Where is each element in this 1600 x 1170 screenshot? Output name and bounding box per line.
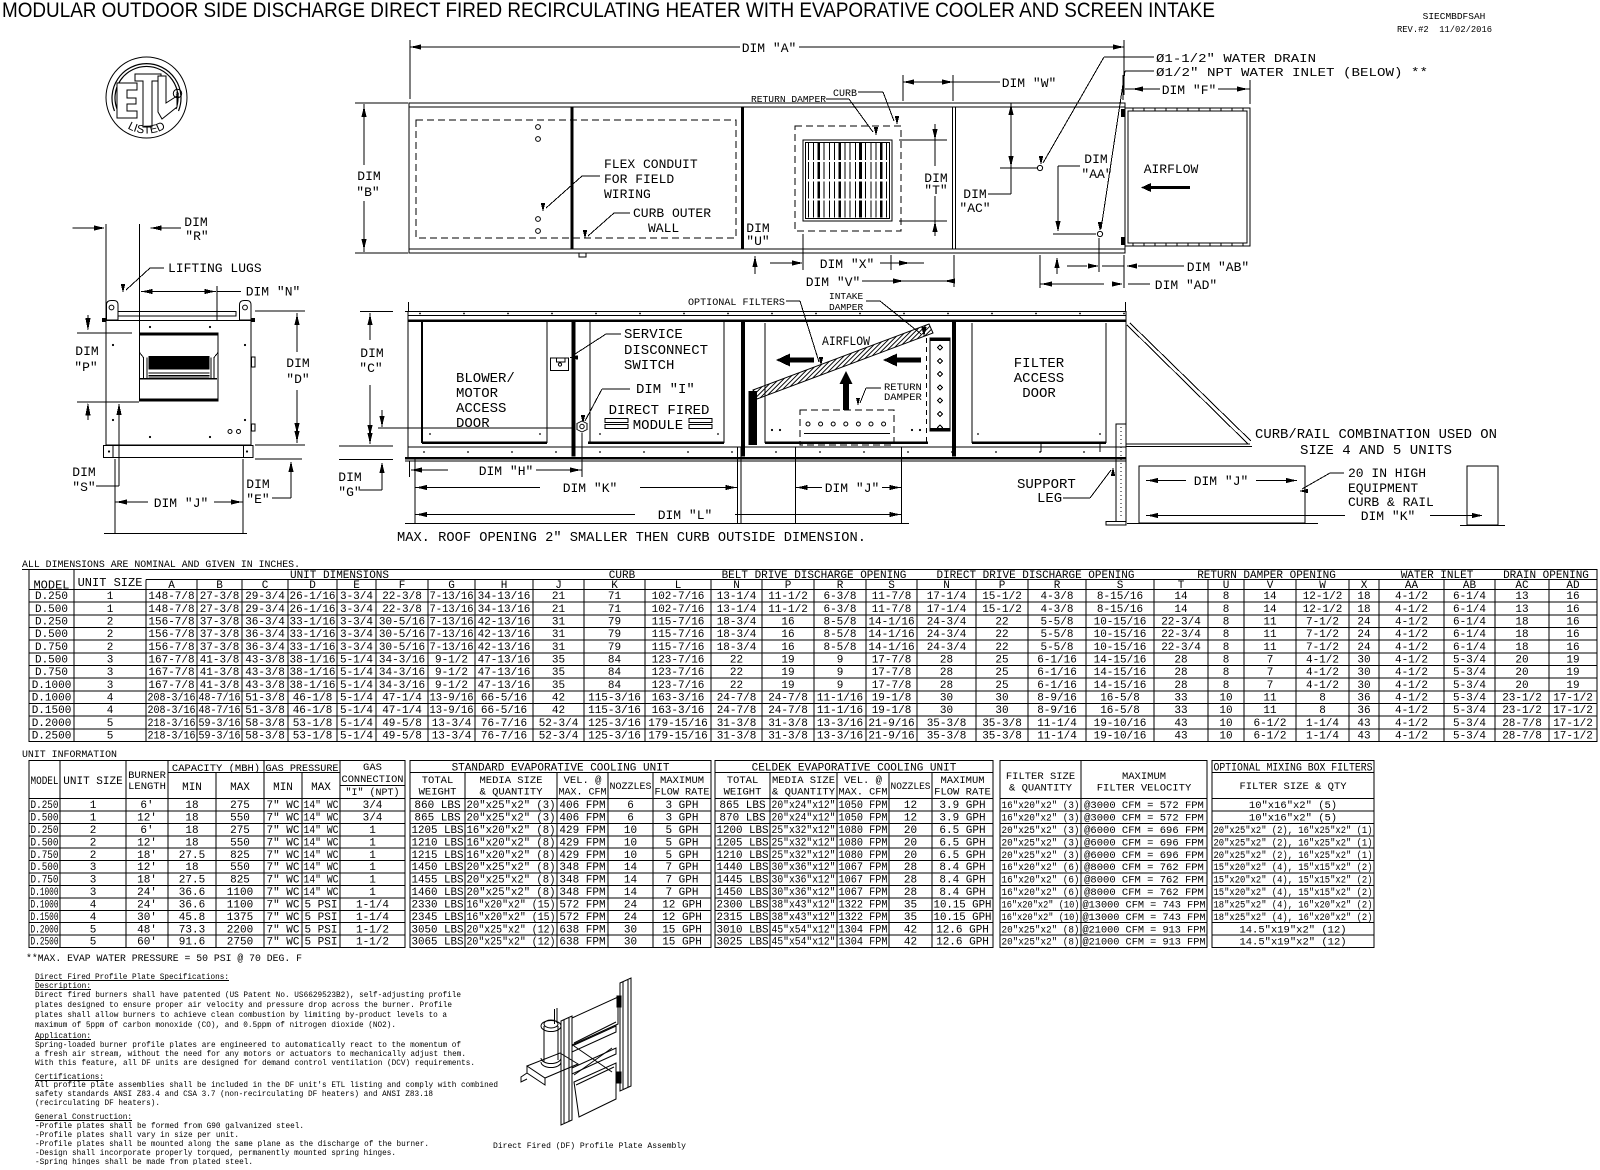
svg-text:860 LBS: 860 LBS: [414, 800, 461, 812]
svg-text:CURB/RAIL COMBINATION USED ON: CURB/RAIL COMBINATION USED ON: [1255, 427, 1497, 443]
svg-text:10″x16″x2″ (5): 10″x16″x2″ (5): [1249, 800, 1337, 812]
svg-text:20″x25″x2″ (2), 16″x25″x2″ (1): 20″x25″x2″ (2), 16″x25″x2″ (1): [1214, 837, 1373, 849]
svg-text:19: 19: [781, 654, 794, 666]
svg-text:DIRECT FIRED: DIRECT FIRED: [609, 403, 710, 419]
svg-text:19-1/8: 19-1/8: [872, 705, 912, 717]
svg-text:UNIT SIZE: UNIT SIZE: [78, 576, 143, 590]
svg-text:47-13/16: 47-13/16: [478, 680, 531, 692]
svg-text:18: 18: [185, 862, 198, 874]
svg-text:38-1/16: 38-1/16: [290, 680, 336, 692]
svg-text:8: 8: [1223, 642, 1230, 654]
svg-text:15″x20″x2″ (4), 15″x15″x2″ (2): 15″x20″x2″ (4), 15″x15″x2″ (2): [1214, 875, 1373, 887]
svg-text:ACCESS: ACCESS: [456, 401, 506, 417]
svg-text:3025 LBS: 3025 LBS: [717, 937, 769, 949]
svg-text:12: 12: [904, 813, 917, 825]
svg-text:156-7/8: 156-7/8: [148, 629, 194, 641]
svg-text:28: 28: [940, 667, 953, 679]
svg-text:35: 35: [552, 654, 565, 666]
svg-text:167-7/8: 167-7/8: [148, 680, 194, 692]
svg-text:348 FPM: 348 FPM: [559, 887, 605, 899]
svg-text:DIM: DIM: [1084, 152, 1107, 167]
svg-text:″B″: ″B″: [356, 185, 379, 200]
svg-text:1100: 1100: [227, 887, 253, 899]
svg-text:125-3/16: 125-3/16: [588, 730, 641, 742]
svg-text:825: 825: [230, 850, 250, 862]
svg-text:7 GPH: 7 GPH: [665, 887, 698, 899]
svg-text:5 GPH: 5 GPH: [665, 837, 698, 849]
svg-text:20: 20: [904, 850, 917, 862]
svg-text:28: 28: [1174, 680, 1187, 692]
svg-text:2: 2: [90, 837, 97, 849]
svg-text:16″x20″x2″ (3): 16″x20″x2″ (3): [1002, 800, 1080, 812]
svg-text:14″ WC: 14″ WC: [304, 875, 339, 887]
svg-text:4-1/2: 4-1/2: [1395, 654, 1428, 666]
svg-text:148-7/8: 148-7/8: [148, 591, 194, 603]
svg-text:4-1/2: 4-1/2: [1395, 604, 1428, 616]
svg-text:49-5/8: 49-5/8: [382, 730, 422, 742]
svg-text:3 GPH: 3 GPH: [665, 800, 698, 812]
svg-text:″C″: ″C″: [359, 361, 382, 376]
svg-text:123-7/16: 123-7/16: [652, 654, 705, 666]
svg-text:429 FPM: 429 FPM: [559, 837, 605, 849]
svg-text:20″x25″x2″ (12): 20″x25″x2″ (12): [467, 924, 556, 936]
svg-text:16: 16: [1566, 629, 1579, 641]
svg-text:18″x25″x2″ (4), 16″x20″x2″ (2): 18″x25″x2″ (4), 16″x20″x2″ (2): [1214, 912, 1373, 924]
svg-text:13-1/4: 13-1/4: [717, 591, 757, 603]
svg-text:MAXIMUM: MAXIMUM: [1122, 771, 1166, 783]
svg-text:DIM ″J″: DIM ″J″: [1194, 474, 1249, 489]
svg-text:REV.#2 11/02/2016: REV.#2 11/02/2016: [1397, 24, 1492, 35]
svg-text:42: 42: [552, 705, 565, 717]
svg-text:22-3/8: 22-3/8: [382, 604, 422, 616]
svg-text:22: 22: [730, 680, 743, 692]
svg-text:18: 18: [1515, 629, 1528, 641]
svg-text:NOZZLES: NOZZLES: [610, 781, 652, 793]
svg-text:19: 19: [1566, 680, 1579, 692]
svg-text:38-1/16: 38-1/16: [290, 667, 336, 679]
svg-text:8: 8: [1223, 667, 1230, 679]
svg-text:MAXIMUM: MAXIMUM: [660, 775, 704, 787]
svg-text:12': 12': [137, 862, 157, 874]
svg-text:15 GPH: 15 GPH: [662, 937, 702, 949]
svg-text:10: 10: [1219, 718, 1232, 730]
svg-text:7: 7: [1267, 654, 1274, 666]
svg-text:19: 19: [1566, 667, 1579, 679]
svg-text:SWITCH: SWITCH: [624, 358, 674, 374]
svg-text:31-3/8: 31-3/8: [768, 730, 808, 742]
svg-text:″U″: ″U″: [746, 234, 769, 249]
svg-text:53-1/8: 53-1/8: [293, 718, 333, 730]
svg-text:58-3/8: 58-3/8: [245, 730, 285, 742]
svg-text:24: 24: [1357, 629, 1371, 641]
svg-text:RETURN DAMPER: RETURN DAMPER: [751, 94, 826, 105]
svg-text:1-1/2: 1-1/2: [356, 924, 389, 936]
svg-text:7: 7: [1267, 667, 1274, 679]
svg-text:4-1/2: 4-1/2: [1395, 692, 1428, 704]
svg-text:Direct fired burners shall hav: Direct fired burners shall have patented…: [35, 991, 461, 1000]
svg-text:ACCESS: ACCESS: [1014, 371, 1064, 387]
svg-text:71: 71: [608, 604, 622, 616]
svg-text:18: 18: [1357, 591, 1370, 603]
svg-text:28-7/8: 28-7/8: [1502, 718, 1542, 730]
svg-text:34-13/16: 34-13/16: [478, 604, 531, 616]
svg-text:**MAX. EVAP WATER PRESSURE = 5: **MAX. EVAP WATER PRESSURE = 50 PSI @ 70…: [26, 953, 302, 965]
svg-text:10-15/16: 10-15/16: [1094, 629, 1147, 641]
svg-text:16″x20″x2″ (10): 16″x20″x2″ (10): [1002, 899, 1080, 911]
svg-text:13-3/4: 13-3/4: [432, 718, 472, 730]
svg-text:DIM ″A″: DIM ″A″: [742, 41, 797, 56]
svg-text:7″ WC: 7″ WC: [266, 887, 299, 899]
svg-text:22-3/4: 22-3/4: [1161, 616, 1201, 628]
svg-text:1375: 1375: [227, 912, 253, 924]
svg-text:20″x25″x2″ (3): 20″x25″x2″ (3): [1002, 837, 1080, 849]
svg-text:1: 1: [369, 862, 376, 874]
svg-text:163-3/16: 163-3/16: [652, 692, 705, 704]
svg-text:11-1/4: 11-1/4: [1037, 718, 1077, 730]
svg-text:18': 18': [137, 875, 157, 887]
svg-text:BELT DRIVE DISCHARGE OPENING: BELT DRIVE DISCHARGE OPENING: [722, 570, 907, 582]
svg-text:18-3/4: 18-3/4: [717, 629, 757, 641]
svg-text:17-7/8: 17-7/8: [872, 667, 912, 679]
svg-text:WEIGHT: WEIGHT: [419, 787, 457, 799]
svg-text:31: 31: [552, 616, 566, 628]
svg-text:3-3/4: 3-3/4: [340, 591, 373, 603]
svg-text:& QUANTITY: & QUANTITY: [479, 787, 543, 799]
svg-text:2345 LBS: 2345 LBS: [412, 912, 464, 924]
svg-text:13: 13: [1515, 591, 1528, 603]
svg-text:UNIT SIZE: UNIT SIZE: [63, 776, 123, 788]
svg-text:30″x36″x12″: 30″x36″x12″: [772, 862, 836, 874]
svg-text:2: 2: [90, 850, 97, 862]
svg-text:14″ WC: 14″ WC: [304, 862, 339, 874]
svg-text:15-1/2: 15-1/2: [982, 591, 1022, 603]
svg-text:″D″: ″D″: [286, 372, 309, 387]
svg-text:58-3/8: 58-3/8: [245, 718, 285, 730]
svg-text:1: 1: [369, 875, 376, 887]
svg-text:156-7/8: 156-7/8: [148, 616, 194, 628]
svg-text:plates designed to ensure prop: plates designed to ensure proper air vel…: [35, 1001, 452, 1010]
svg-text:34-3/16: 34-3/16: [379, 680, 425, 692]
svg-text:2315 LBS: 2315 LBS: [717, 912, 769, 924]
svg-text:30: 30: [995, 705, 1008, 717]
svg-text:41-3/8: 41-3/8: [200, 680, 240, 692]
svg-text:DIM ″J″: DIM ″J″: [154, 496, 209, 511]
svg-text:14-15/16: 14-15/16: [1094, 654, 1147, 666]
svg-text:43-3/8: 43-3/8: [245, 654, 285, 666]
svg-text:1: 1: [369, 825, 376, 837]
svg-text:& QUANTITY: & QUANTITY: [1009, 783, 1073, 795]
svg-text:123-7/16: 123-7/16: [652, 667, 705, 679]
svg-text:2300 LBS: 2300 LBS: [717, 899, 769, 911]
svg-text:48-7/16: 48-7/16: [199, 705, 241, 717]
svg-text:47-1/4: 47-1/4: [382, 705, 422, 717]
svg-text:29-3/4: 29-3/4: [245, 604, 285, 616]
svg-text:14: 14: [624, 862, 638, 874]
svg-text:23-1/2: 23-1/2: [1502, 705, 1542, 717]
svg-text:1: 1: [369, 850, 376, 862]
svg-text:20″x25″x2″ (8): 20″x25″x2″ (8): [1002, 937, 1080, 949]
svg-text:8-5/8: 8-5/8: [823, 616, 856, 628]
svg-text:25″x32″x12″: 25″x32″x12″: [772, 825, 836, 837]
svg-text:-Profile plates shall be mount: -Profile plates shall be mounted along t…: [35, 1140, 429, 1149]
svg-text:45″x54″x12″: 45″x54″x12″: [772, 937, 836, 949]
svg-text:11: 11: [1263, 642, 1277, 654]
svg-text:1050 FPM: 1050 FPM: [839, 813, 888, 825]
svg-text:7-1/2: 7-1/2: [1306, 616, 1339, 628]
svg-text:59-3/16: 59-3/16: [199, 730, 241, 742]
svg-text:4-3/8: 4-3/8: [1040, 591, 1073, 603]
svg-text:18: 18: [1515, 642, 1528, 654]
svg-text:WALL: WALL: [648, 221, 679, 236]
svg-text:275: 275: [230, 800, 250, 812]
svg-text:@21000 CFM = 913 FPM: @21000 CFM = 913 FPM: [1083, 937, 1206, 949]
svg-text:35-3/8: 35-3/8: [982, 718, 1022, 730]
svg-text:GAS: GAS: [363, 762, 382, 774]
svg-text:18: 18: [185, 813, 198, 825]
svg-text:MODEL: MODEL: [31, 776, 59, 788]
svg-text:DIM: DIM: [357, 169, 380, 184]
svg-text:5 GPH: 5 GPH: [665, 825, 698, 837]
svg-text:FILTER VELOCITY: FILTER VELOCITY: [1097, 783, 1192, 795]
svg-text:DIM: DIM: [338, 470, 361, 485]
svg-text:275: 275: [230, 825, 250, 837]
svg-text:30: 30: [995, 692, 1008, 704]
svg-text:2200: 2200: [227, 924, 253, 936]
svg-text:4-1/2: 4-1/2: [1306, 654, 1339, 666]
svg-text:FLOW RATE: FLOW RATE: [934, 787, 991, 799]
svg-text:16″x20″x2″ (6): 16″x20″x2″ (6): [1002, 875, 1080, 887]
svg-text:a fresh air stream, without th: a fresh air stream, without the need for…: [35, 1050, 466, 1059]
svg-text:MOTOR: MOTOR: [456, 386, 499, 402]
svg-text:10.15 GPH: 10.15 GPH: [934, 899, 992, 911]
svg-text:7″ WC: 7″ WC: [266, 825, 299, 837]
svg-text:30: 30: [1357, 654, 1370, 666]
svg-text:20″x25″x2″ (8): 20″x25″x2″ (8): [467, 862, 556, 874]
svg-text:D.2000: D.2000: [32, 718, 72, 730]
svg-text:D.1000: D.1000: [32, 692, 72, 704]
svg-text:1205 LBS: 1205 LBS: [717, 837, 769, 849]
svg-text:15″x20″x2″ (4), 15″x15″x2″ (2): 15″x20″x2″ (4), 15″x15″x2″ (2): [1214, 887, 1373, 899]
svg-text:13-3/16: 13-3/16: [817, 730, 863, 742]
svg-text:With this feature, all DF unit: With this feature, all DF units are desi…: [35, 1059, 475, 1068]
svg-text:33-1/16: 33-1/16: [290, 642, 336, 654]
svg-text:11-1/4: 11-1/4: [1037, 730, 1077, 742]
svg-text:17-1/2: 17-1/2: [1553, 718, 1593, 730]
svg-text:208-3/16: 208-3/16: [148, 692, 196, 704]
svg-text:429 FPM: 429 FPM: [559, 825, 605, 837]
svg-text:LIFTING LUGS: LIFTING LUGS: [168, 261, 262, 276]
svg-text:42: 42: [904, 937, 917, 949]
svg-text:7″ WC: 7″ WC: [266, 800, 299, 812]
svg-text:18: 18: [185, 800, 198, 812]
svg-text:6-1/2: 6-1/2: [1253, 718, 1286, 730]
svg-text:D.750: D.750: [31, 850, 59, 862]
svg-text:maximum of 5ppm of carbon mono: maximum of 5ppm of carbon monoxide (CO),…: [35, 1021, 396, 1030]
svg-text:14-1/16: 14-1/16: [868, 616, 914, 628]
svg-text:FOR FIELD: FOR FIELD: [604, 172, 674, 187]
svg-text:28: 28: [940, 654, 953, 666]
svg-text:3-3/4: 3-3/4: [340, 616, 373, 628]
svg-text:20″x24″x12″: 20″x24″x12″: [772, 800, 836, 812]
svg-text:28: 28: [940, 680, 953, 692]
svg-text:7-13/16: 7-13/16: [430, 642, 474, 654]
svg-text:7″ WC: 7″ WC: [266, 899, 299, 911]
svg-text:45″x54″x12″: 45″x54″x12″: [772, 924, 836, 936]
svg-text:FILTER: FILTER: [1014, 356, 1065, 372]
svg-text:10-15/16: 10-15/16: [1094, 616, 1147, 628]
svg-text:46-1/8: 46-1/8: [293, 692, 333, 704]
svg-text:79: 79: [608, 629, 621, 641]
svg-text:30: 30: [624, 924, 637, 936]
svg-text:2330 LBS: 2330 LBS: [412, 899, 464, 911]
svg-text:41-3/8: 41-3/8: [200, 654, 240, 666]
svg-text:DOOR: DOOR: [1022, 386, 1056, 402]
svg-text:CURB & RAIL: CURB & RAIL: [1348, 495, 1434, 510]
svg-text:14″ WC: 14″ WC: [304, 887, 339, 899]
svg-text:14″ WC: 14″ WC: [304, 800, 339, 812]
svg-text:″E″: ″E″: [246, 492, 269, 507]
svg-text:16″x20″x2″ (10): 16″x20″x2″ (10): [1002, 912, 1080, 924]
svg-text:16″x20″x2″ (8): 16″x20″x2″ (8): [467, 837, 556, 849]
svg-text:1067 FPM: 1067 FPM: [839, 875, 888, 887]
svg-text:60': 60': [137, 937, 157, 949]
svg-text:5-5/8: 5-5/8: [1040, 629, 1073, 641]
svg-text:20: 20: [1515, 667, 1528, 679]
svg-text:@8000 CFM = 762 FPM: @8000 CFM = 762 FPM: [1084, 875, 1204, 887]
svg-text:7″ WC: 7″ WC: [266, 862, 299, 874]
svg-text:8-15/16: 8-15/16: [1097, 604, 1143, 616]
svg-text:24-3/4: 24-3/4: [927, 629, 967, 641]
svg-text:12': 12': [137, 837, 157, 849]
svg-text:SERVICE: SERVICE: [624, 327, 683, 343]
svg-text:-Design shall incorporate prop: -Design shall incorporate properly torqu…: [35, 1149, 396, 1158]
svg-text:76-7/16: 76-7/16: [481, 718, 527, 730]
svg-text:13-9/16: 13-9/16: [430, 705, 474, 717]
svg-text:37-3/8: 37-3/8: [200, 616, 240, 628]
svg-text:17-7/8: 17-7/8: [872, 680, 912, 692]
svg-text:16: 16: [1566, 642, 1579, 654]
svg-text:31-3/8: 31-3/8: [717, 718, 757, 730]
svg-text:66-5/16: 66-5/16: [481, 705, 527, 717]
svg-text:7″ WC: 7″ WC: [266, 837, 299, 849]
svg-text:42-13/16: 42-13/16: [478, 629, 531, 641]
svg-text:DIM ″W″: DIM ″W″: [1002, 76, 1057, 91]
svg-text:12-1/2: 12-1/2: [1303, 604, 1343, 616]
svg-text:24-7/8: 24-7/8: [768, 692, 808, 704]
svg-text:AIRFLOW: AIRFLOW: [1144, 162, 1199, 177]
svg-text:4: 4: [107, 705, 114, 717]
svg-text:CURB OUTER: CURB OUTER: [633, 206, 711, 221]
svg-text:5 PSI: 5 PSI: [304, 899, 337, 911]
svg-text:DIM: DIM: [246, 477, 269, 492]
svg-text:STANDARD EVAPORATIVE COOLING U: STANDARD EVAPORATIVE COOLING UNIT: [452, 763, 670, 775]
svg-text:35: 35: [552, 667, 565, 679]
svg-text:20″x25″x2″ (3): 20″x25″x2″ (3): [467, 813, 556, 825]
svg-text:208-3/16: 208-3/16: [148, 705, 196, 717]
svg-text:2: 2: [107, 642, 114, 654]
svg-text:3: 3: [90, 887, 97, 899]
svg-text:7″ WC: 7″ WC: [266, 912, 299, 924]
svg-text:@3000 CFM = 572 FPM: @3000 CFM = 572 FPM: [1084, 800, 1204, 812]
svg-text:″P″: ″P″: [74, 360, 97, 375]
svg-text:24: 24: [624, 912, 638, 924]
svg-text:2: 2: [90, 825, 97, 837]
svg-text:Spring-loaded burner profile p: Spring-loaded burner profile plates are …: [35, 1041, 461, 1050]
svg-text:OPTIONAL FILTERS: OPTIONAL FILTERS: [688, 297, 785, 309]
svg-text:3: 3: [90, 862, 97, 874]
svg-text:11-1/16: 11-1/16: [817, 705, 863, 717]
svg-text:1200 LBS: 1200 LBS: [717, 825, 769, 837]
svg-text:7-1/2: 7-1/2: [1306, 629, 1339, 641]
svg-text:31-3/8: 31-3/8: [768, 718, 808, 730]
svg-text:18: 18: [1515, 616, 1528, 628]
svg-text:22-3/4: 22-3/4: [1161, 642, 1201, 654]
svg-text:1215 LBS: 1215 LBS: [412, 850, 464, 862]
svg-text:865 LBS: 865 LBS: [414, 813, 461, 825]
svg-text:8-5/8: 8-5/8: [823, 629, 856, 641]
svg-text:All profile plate assemblies s: All profile plate assemblies shall be in…: [35, 1081, 498, 1090]
svg-text:D.2000: D.2000: [31, 924, 59, 936]
svg-text:17-1/4: 17-1/4: [927, 604, 967, 616]
svg-text:1450 LBS: 1450 LBS: [412, 862, 464, 874]
svg-text:42: 42: [904, 924, 917, 936]
svg-text:7 GPH: 7 GPH: [665, 875, 698, 887]
svg-text:19: 19: [781, 680, 794, 692]
svg-text:4-1/2: 4-1/2: [1395, 718, 1428, 730]
svg-text:8: 8: [1223, 616, 1230, 628]
svg-text:DOOR: DOOR: [456, 416, 490, 432]
svg-text:115-3/16: 115-3/16: [588, 692, 641, 704]
svg-text:MAX: MAX: [311, 782, 331, 794]
svg-text:36.6: 36.6: [179, 887, 205, 899]
svg-text:12 GPH: 12 GPH: [662, 899, 702, 911]
svg-text:20″x25″x2″ (3): 20″x25″x2″ (3): [1002, 825, 1080, 837]
svg-text:48': 48': [137, 924, 157, 936]
svg-text:13: 13: [1515, 604, 1528, 616]
svg-text:115-7/16: 115-7/16: [652, 616, 705, 628]
svg-text:21-9/16: 21-9/16: [868, 730, 914, 742]
svg-text:406 FPM: 406 FPM: [559, 813, 605, 825]
svg-text:43: 43: [1357, 718, 1370, 730]
svg-text:43-3/8: 43-3/8: [245, 680, 285, 692]
svg-text:1322 FPM: 1322 FPM: [839, 899, 888, 911]
svg-text:GAS PRESSURE: GAS PRESSURE: [266, 763, 339, 775]
svg-text:DIM ″AD″: DIM ″AD″: [1155, 278, 1217, 293]
svg-text:4-1/2: 4-1/2: [1395, 591, 1428, 603]
svg-text:638 FPM: 638 FPM: [559, 937, 605, 949]
svg-text:11-1/2: 11-1/2: [768, 591, 808, 603]
svg-text:21: 21: [552, 604, 566, 616]
svg-text:13-9/16: 13-9/16: [430, 692, 474, 704]
svg-text:-Spring hinges shall be made f: -Spring hinges shall be made from plated…: [35, 1158, 253, 1165]
svg-text:DIM ″H″: DIM ″H″: [479, 464, 534, 479]
svg-text:14″ WC: 14″ WC: [304, 850, 339, 862]
svg-text:DIM ″K″: DIM ″K″: [563, 481, 618, 496]
svg-text:24-7/8: 24-7/8: [768, 705, 808, 717]
svg-text:406 FPM: 406 FPM: [559, 800, 605, 812]
svg-text:10: 10: [1219, 692, 1232, 704]
svg-text:6': 6': [140, 800, 153, 812]
svg-text:D.750: D.750: [35, 642, 68, 654]
svg-text:6.5 GPH: 6.5 GPH: [939, 825, 985, 837]
svg-text:8.4 GPH: 8.4 GPH: [939, 887, 985, 899]
svg-text:VEL. @: VEL. @: [564, 775, 603, 787]
svg-text:25: 25: [995, 654, 1008, 666]
svg-text:DIM: DIM: [360, 346, 383, 361]
svg-text:35: 35: [552, 680, 565, 692]
svg-text:53-1/8: 53-1/8: [293, 730, 333, 742]
svg-text:24: 24: [1357, 616, 1371, 628]
